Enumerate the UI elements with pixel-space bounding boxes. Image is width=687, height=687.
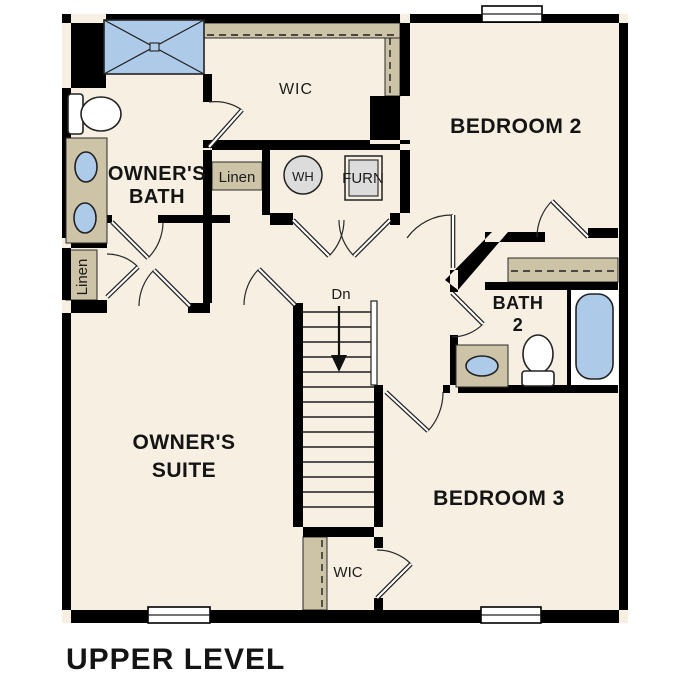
owners-suite-label-line2: SUITE xyxy=(152,459,216,482)
window-bedroom2 xyxy=(482,6,542,22)
floor-plan-canvas: OWNER'S BATH WIC Linen Linen WH FURN BED… xyxy=(0,0,687,687)
furnace-label: FURN xyxy=(342,170,384,187)
shower-icon xyxy=(104,20,204,74)
bathtub-icon xyxy=(571,290,618,385)
bath2-vanity-icon xyxy=(456,345,508,387)
owners-bath-label-line2: BATH xyxy=(129,186,185,208)
bedroom3-label: BEDROOM 3 xyxy=(433,487,565,510)
wic-top-label: WIC xyxy=(279,81,313,98)
bedroom2-label: BEDROOM 2 xyxy=(450,115,582,138)
wic-bottom-shelf xyxy=(303,537,327,610)
linen-left-label: Linen xyxy=(74,259,91,296)
window-owners-suite xyxy=(148,607,210,623)
stairs-down-label: Dn xyxy=(331,286,350,303)
wic-bottom-label: WIC xyxy=(333,564,362,581)
toilet-icon xyxy=(68,94,121,134)
double-vanity-icon xyxy=(66,138,107,243)
bath2-label-line2: 2 xyxy=(513,315,524,335)
bath2-toilet-icon xyxy=(522,335,554,386)
bath2-label-line1: BATH xyxy=(493,293,544,313)
window-bedroom3 xyxy=(481,607,541,623)
wic-top-shelf-side xyxy=(385,38,400,96)
owners-suite-label-line1: OWNER'S xyxy=(133,431,236,454)
water-heater-label: WH xyxy=(292,169,314,184)
linen-mid-label: Linen xyxy=(219,169,256,186)
plan-title: UPPER LEVEL xyxy=(66,643,285,676)
stair-railing xyxy=(371,301,377,385)
wic-top-shelf xyxy=(203,23,400,38)
owners-bath-label-line1: OWNER'S xyxy=(108,163,206,185)
bedroom2-closet-shelf xyxy=(508,258,618,282)
floor-plan: OWNER'S BATH WIC Linen Linen WH FURN BED… xyxy=(0,0,687,687)
